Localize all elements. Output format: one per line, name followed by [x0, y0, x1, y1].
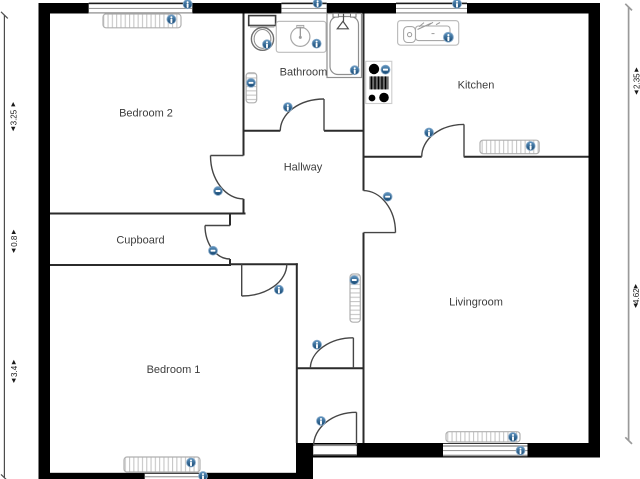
svg-text:Bathroom: Bathroom	[280, 67, 328, 79]
svg-text:0.8: 0.8	[10, 235, 19, 247]
svg-text:3.25: 3.25	[9, 109, 18, 125]
svg-text:Cupboard: Cupboard	[116, 235, 164, 247]
svg-text:Bedroom 1: Bedroom 1	[147, 364, 201, 376]
svg-text:Bedroom 2: Bedroom 2	[119, 108, 173, 120]
svg-text:Hallway: Hallway	[284, 162, 323, 174]
svg-text:Kitchen: Kitchen	[458, 80, 495, 92]
svg-text:3.4: 3.4	[10, 365, 19, 377]
svg-text:2.35: 2.35	[633, 73, 640, 89]
svg-text:4.62: 4.62	[632, 288, 640, 304]
svg-text:Livingroom: Livingroom	[449, 297, 503, 309]
